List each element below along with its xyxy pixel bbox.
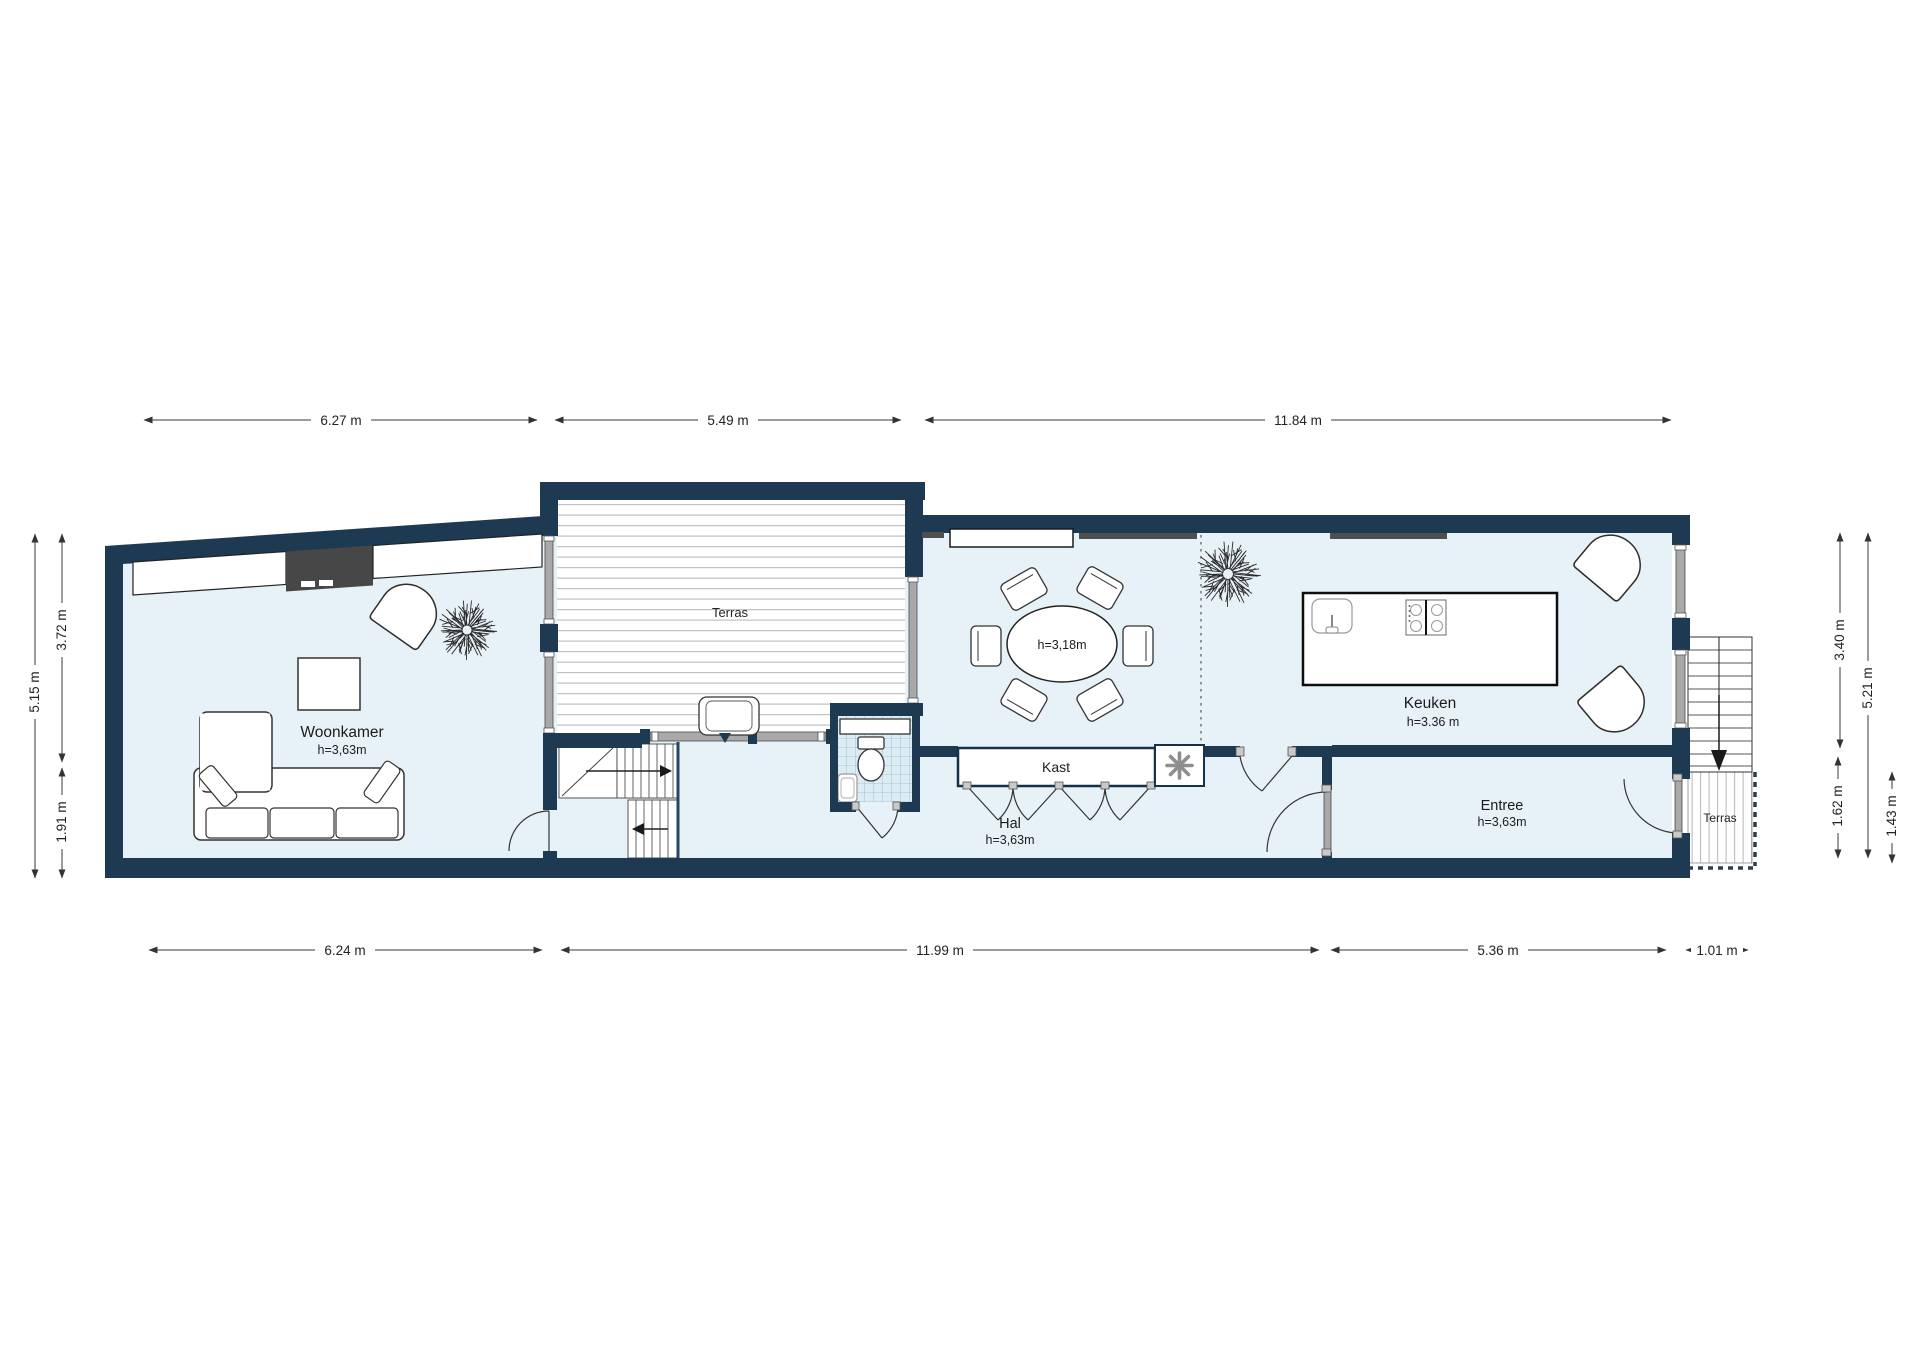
radiator	[922, 532, 944, 538]
svg-text:3.72 m: 3.72 m	[54, 609, 69, 650]
dining-chair	[971, 626, 1001, 666]
radiator	[1079, 533, 1197, 539]
dimension-right-2: 5.21 m	[1860, 533, 1875, 858]
toilet-room	[838, 716, 912, 802]
toilet-bowl	[858, 749, 884, 781]
floor-plan-page: h=3,18m Woonkamer h=3,63m Terras Keuken …	[0, 0, 1920, 1358]
svg-text:3.40 m: 3.40 m	[1832, 619, 1847, 660]
floor-plan-canvas: h=3,18m Woonkamer h=3,63m Terras Keuken …	[0, 0, 1920, 1358]
svg-text:5.21 m: 5.21 m	[1860, 667, 1875, 708]
svg-text:1.01 m: 1.01 m	[1696, 943, 1737, 958]
window-glazing	[1676, 650, 1685, 728]
dining-chair	[1123, 626, 1153, 666]
wall-segment	[920, 746, 958, 757]
room-height-hal: h=3,63m	[986, 833, 1035, 847]
wall-segment	[1332, 745, 1673, 757]
room-height-keuken: h=3.36 m	[1407, 715, 1459, 729]
wall-post	[640, 729, 650, 744]
wall-post	[540, 624, 558, 652]
wall-post	[905, 500, 923, 577]
dimension-bottom-1: 6.24 m	[149, 942, 542, 958]
dimension-bottom-4: 1.01 m	[1686, 942, 1748, 958]
window-glazing	[545, 652, 553, 733]
entrance-door-leaf	[1675, 779, 1682, 833]
wall-post	[540, 498, 558, 536]
svg-text:1.91 m: 1.91 m	[54, 801, 69, 842]
radiator	[1330, 533, 1447, 539]
coffee-table	[298, 658, 360, 710]
wall-segment	[105, 858, 1690, 878]
toilet-shelf	[840, 719, 910, 734]
svg-text:5.49 m: 5.49 m	[707, 413, 748, 428]
fireplace-vent	[319, 580, 333, 586]
wall-segment	[543, 851, 557, 862]
fan-icon	[1167, 753, 1192, 778]
room-label-kast: Kast	[1042, 759, 1070, 775]
cooktop	[1406, 600, 1446, 635]
dimension-top-2: 5.49 m	[555, 412, 901, 428]
room-label-hal: Hal	[999, 816, 1021, 832]
wall-segment	[830, 703, 838, 812]
window-glazing	[909, 577, 917, 703]
dimension-right-4: 1.43 m	[1884, 772, 1899, 863]
mechanical-unit	[1155, 745, 1204, 786]
wall-segment	[1672, 833, 1690, 878]
wall-segment	[1202, 746, 1240, 757]
dimension-left-1: 5.15 m	[27, 534, 42, 878]
dimension-top-3: 11.84 m	[925, 412, 1671, 428]
dining-height-label: h=3,18m	[1038, 638, 1087, 652]
room-label-woonkamer: Woonkamer	[300, 724, 383, 741]
room-label-terras-right: Terras	[1703, 811, 1736, 825]
room-label-entree: Entree	[1481, 798, 1524, 814]
wall-post	[1672, 728, 1690, 779]
dimension-bottom-2: 11.99 m	[561, 942, 1319, 958]
wall-segment	[105, 546, 123, 878]
dimension-right-1: 3.40 m	[1832, 533, 1847, 748]
wall-segment	[830, 703, 923, 716]
wall-segment	[898, 802, 920, 812]
svg-text:11.99 m: 11.99 m	[916, 943, 964, 958]
window-box	[950, 529, 1073, 547]
dimension-right-3: 1.62 m	[1830, 757, 1845, 858]
wall-post	[1672, 618, 1690, 650]
svg-text:6.24 m: 6.24 m	[324, 943, 365, 958]
window-glazing	[1676, 545, 1685, 618]
svg-text:11.84 m: 11.84 m	[1274, 413, 1322, 428]
room-height-entree: h=3,63m	[1478, 815, 1527, 829]
svg-text:5.15 m: 5.15 m	[27, 671, 42, 712]
room-label-keuken: Keuken	[1404, 695, 1457, 712]
dimension-left-3: 1.91 m	[54, 768, 69, 878]
wall-segment	[912, 716, 920, 812]
svg-text:1.62 m: 1.62 m	[1830, 785, 1845, 826]
wall-segment	[540, 482, 925, 500]
svg-text:5.36 m: 5.36 m	[1477, 943, 1518, 958]
wall-segment	[1292, 746, 1332, 757]
sink	[1312, 599, 1352, 633]
room-label-terras: Terras	[712, 605, 749, 620]
room-height-woonkamer: h=3,63m	[318, 743, 367, 757]
dimension-left-2: 3.72 m	[54, 534, 69, 762]
dimension-bottom-3: 5.36 m	[1331, 942, 1666, 958]
fireplace-vent	[301, 581, 315, 587]
wall-segment	[543, 733, 642, 748]
door-leaf-glazed	[1324, 790, 1331, 852]
dimension-top-1: 6.27 m	[144, 412, 537, 428]
svg-text:1.43 m: 1.43 m	[1884, 795, 1899, 836]
toilet-cistern	[858, 737, 884, 749]
svg-text:6.27 m: 6.27 m	[320, 413, 361, 428]
outdoor-stairs	[1688, 637, 1752, 772]
kitchen-island	[1303, 593, 1557, 685]
window-glazing	[545, 536, 553, 624]
wall-post	[1672, 515, 1690, 545]
